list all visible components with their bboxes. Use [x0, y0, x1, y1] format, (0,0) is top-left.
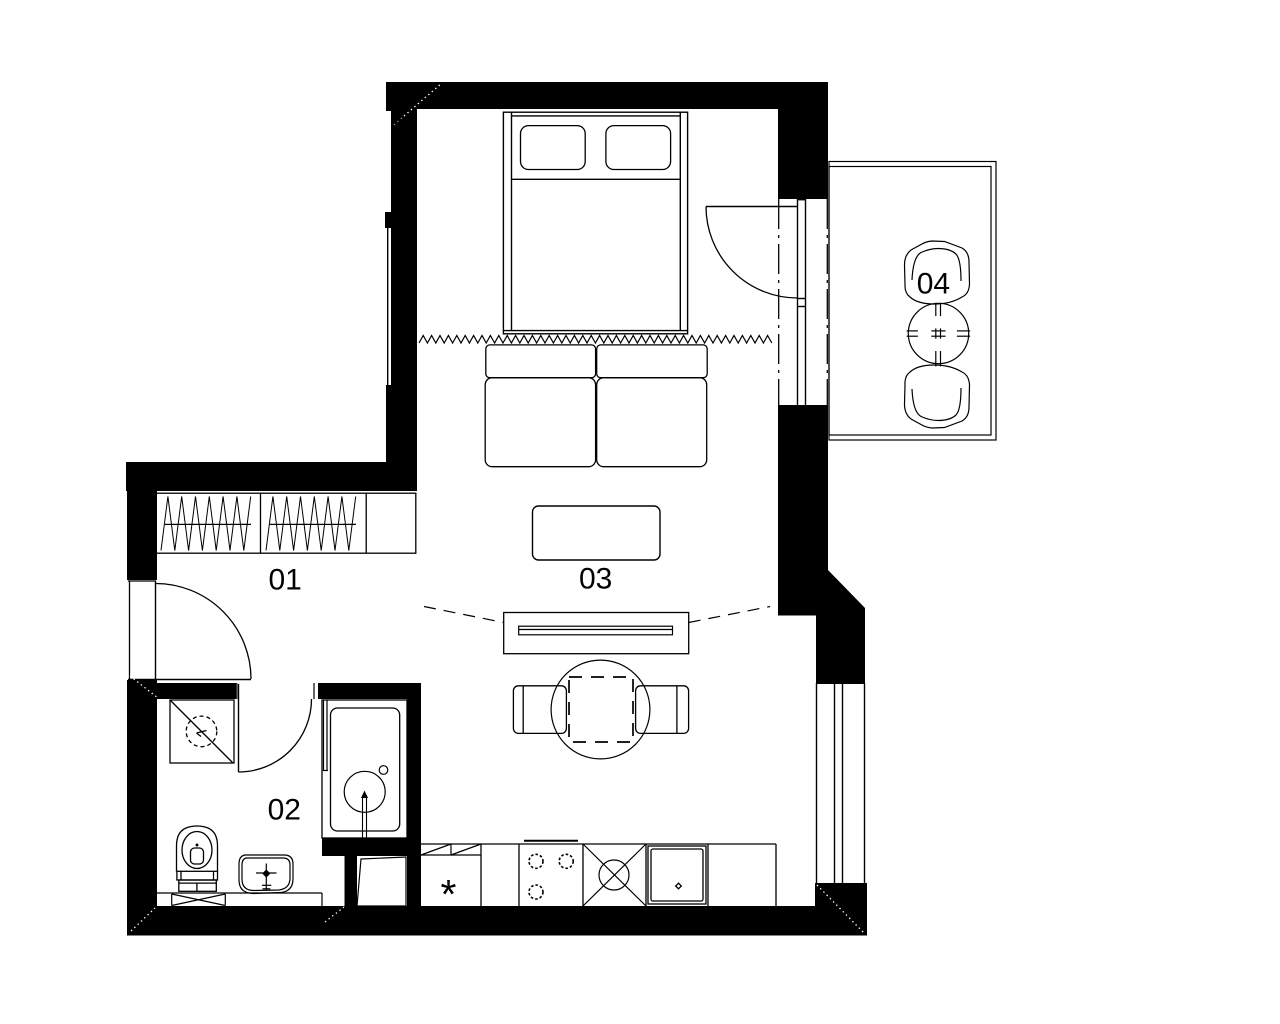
svg-text:01: 01 — [269, 564, 302, 597]
svg-text:*: * — [441, 871, 457, 917]
svg-text:04: 04 — [917, 268, 950, 301]
svg-text:02: 02 — [268, 793, 301, 826]
svg-text:03: 03 — [579, 563, 612, 596]
